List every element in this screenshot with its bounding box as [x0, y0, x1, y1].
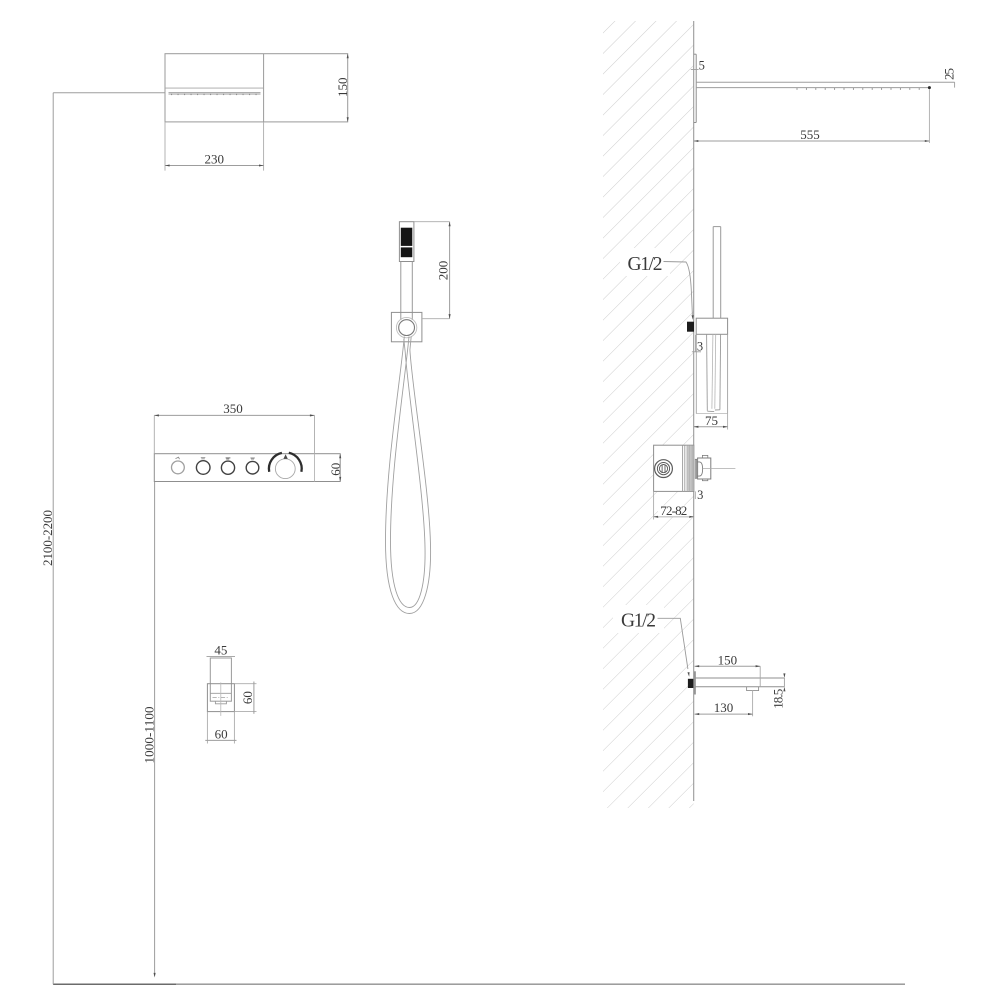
svg-text:60: 60 [215, 726, 228, 741]
svg-text:3: 3 [697, 488, 703, 502]
svg-text:18.5: 18.5 [771, 689, 786, 709]
svg-text:25: 25 [942, 68, 957, 80]
svg-text:45: 45 [214, 643, 227, 658]
svg-text:555: 555 [800, 127, 820, 142]
svg-text:60: 60 [328, 463, 343, 476]
svg-text:350: 350 [223, 401, 243, 416]
svg-text:5: 5 [699, 59, 705, 73]
svg-text:1000-1100: 1000-1100 [141, 707, 156, 764]
svg-text:150: 150 [718, 652, 738, 667]
svg-text:72-82: 72-82 [660, 503, 687, 518]
svg-text:130: 130 [714, 700, 734, 715]
svg-text:60: 60 [240, 691, 255, 704]
svg-text:2100-2200: 2100-2200 [40, 510, 55, 566]
svg-text:G1/2: G1/2 [621, 611, 656, 632]
svg-text:150: 150 [335, 78, 350, 98]
svg-text:G1/2: G1/2 [628, 254, 663, 275]
svg-text:3: 3 [697, 339, 703, 353]
svg-text:75: 75 [705, 413, 718, 428]
svg-text:230: 230 [205, 152, 225, 167]
svg-text:200: 200 [435, 261, 450, 281]
